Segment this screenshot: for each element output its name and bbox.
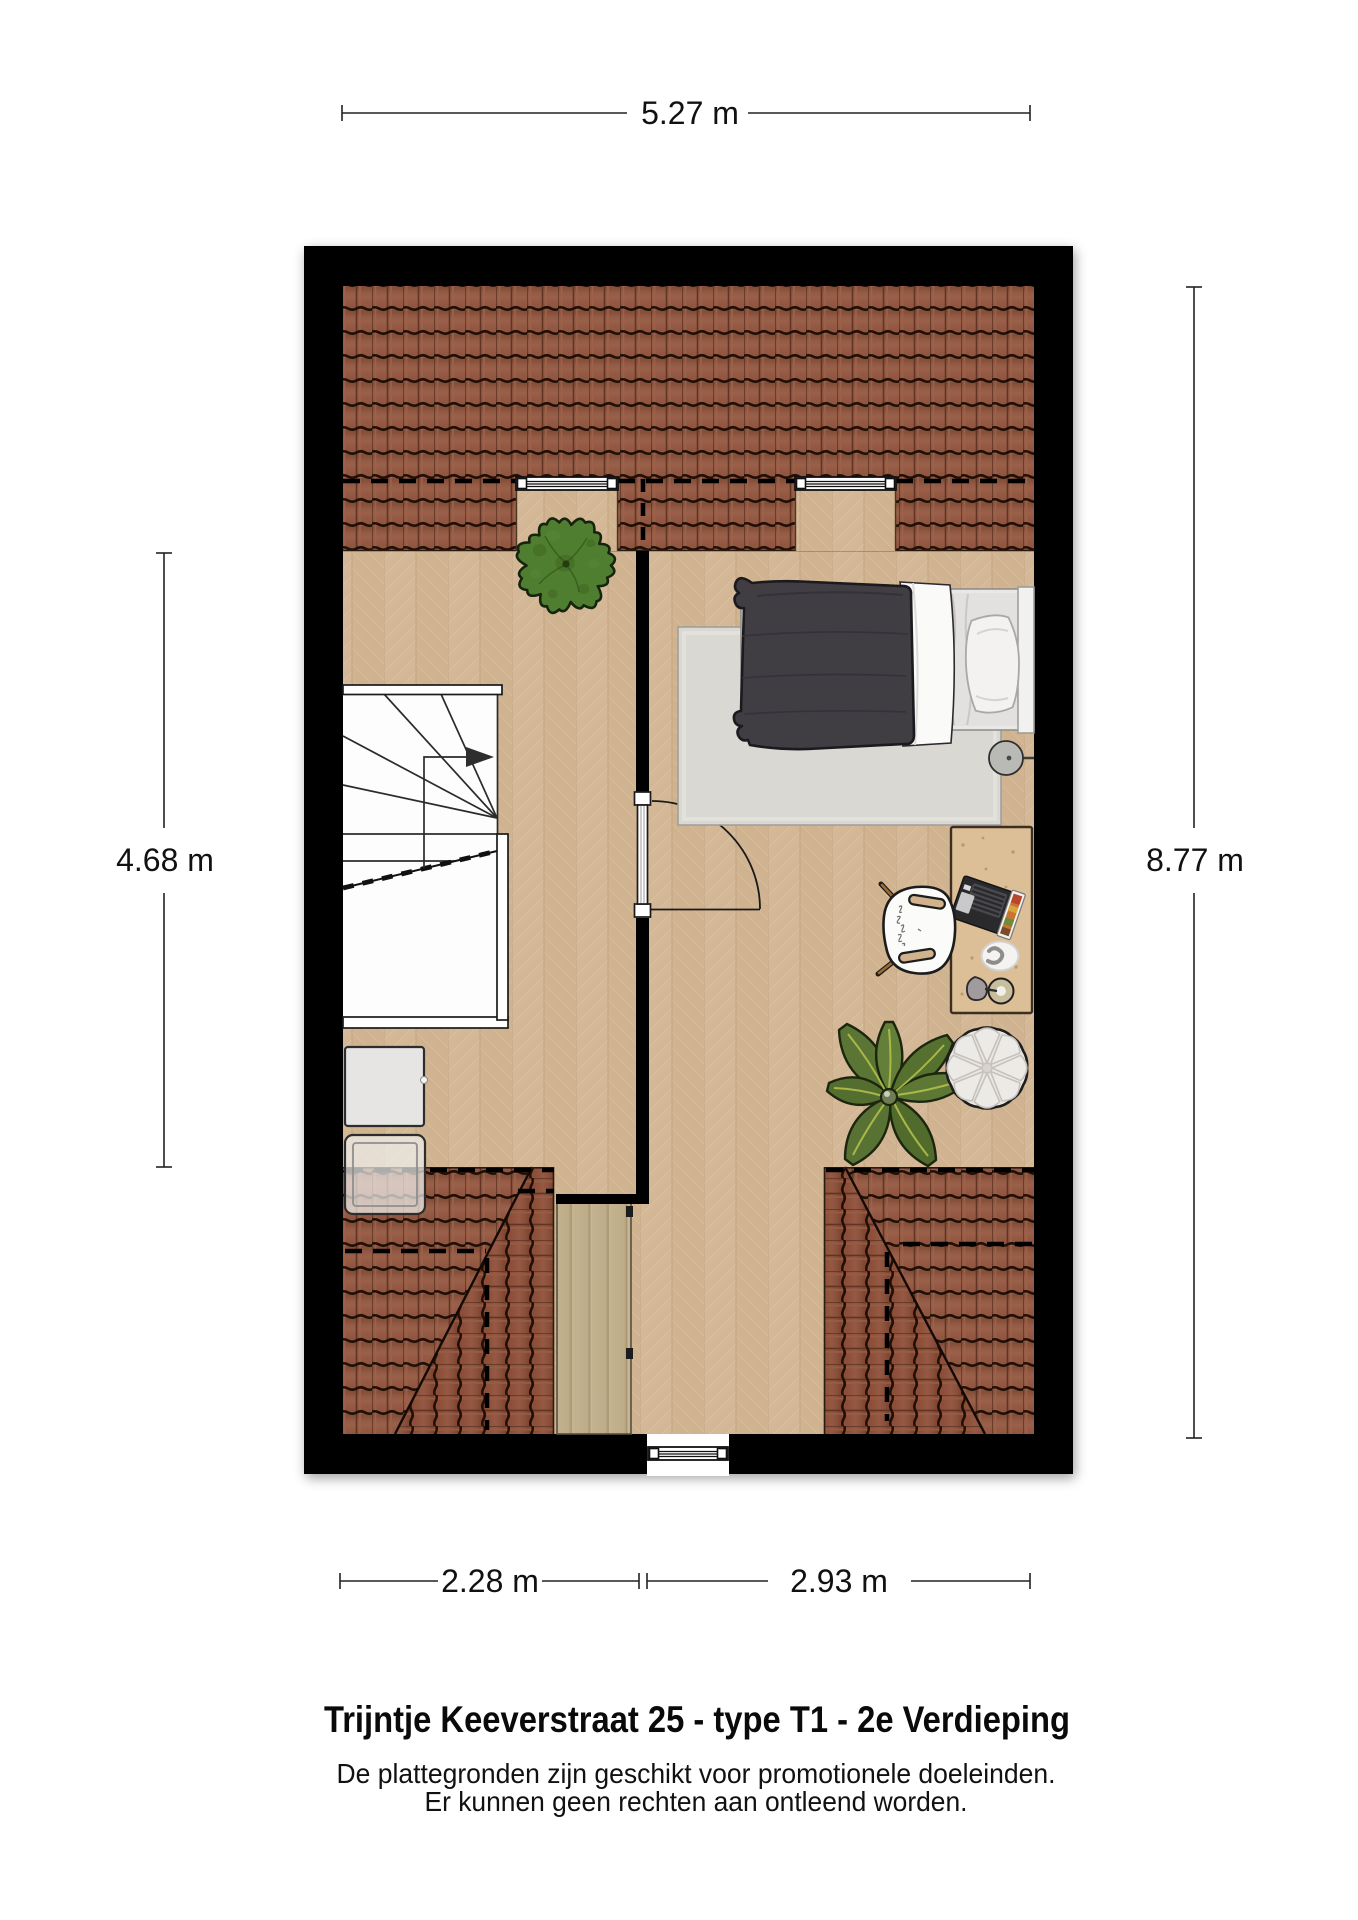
svg-text:2.93 m: 2.93 m: [790, 1563, 888, 1599]
svg-text:Er kunnen geen rechten aan ont: Er kunnen geen rechten aan ontleend word…: [425, 1786, 968, 1817]
svg-text:4.68 m: 4.68 m: [116, 842, 214, 878]
svg-text:8.77 m: 8.77 m: [1146, 842, 1244, 878]
svg-text:5.27 m: 5.27 m: [641, 95, 739, 131]
svg-text:Trijntje Keeverstraat 25 - typ: Trijntje Keeverstraat 25 - type T1 - 2e …: [324, 1699, 1070, 1740]
svg-text:2.28 m: 2.28 m: [441, 1563, 539, 1599]
svg-text:De plattegronden zijn geschikt: De plattegronden zijn geschikt voor prom…: [337, 1758, 1056, 1789]
